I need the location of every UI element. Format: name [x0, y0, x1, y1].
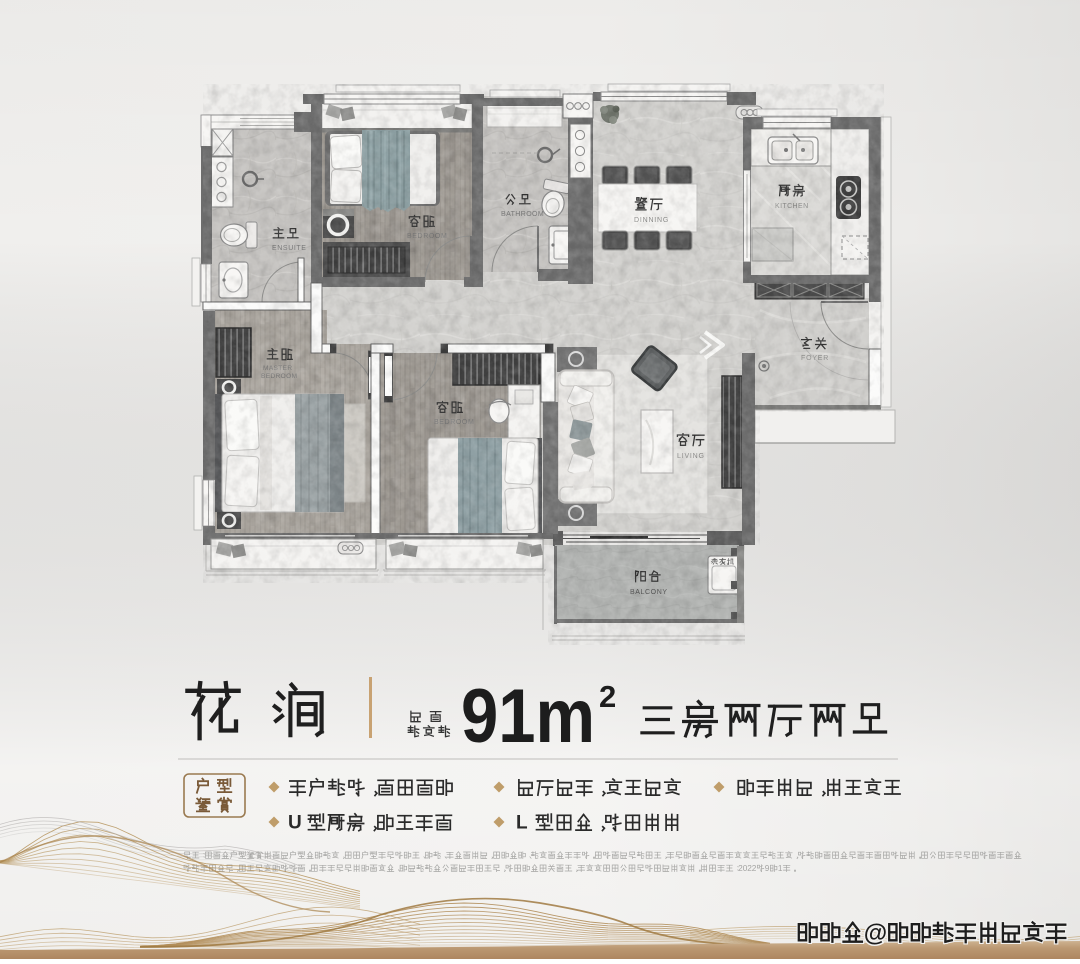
svg-text:@: @: [864, 920, 887, 947]
svg-text:1: 1: [778, 863, 783, 873]
svg-text:91m: 91m: [461, 674, 595, 759]
svg-text:2: 2: [752, 863, 757, 873]
svg-text:U: U: [288, 813, 302, 834]
svg-text:9: 9: [765, 863, 770, 873]
svg-text:2: 2: [599, 679, 616, 714]
svg-text:L: L: [516, 813, 528, 834]
